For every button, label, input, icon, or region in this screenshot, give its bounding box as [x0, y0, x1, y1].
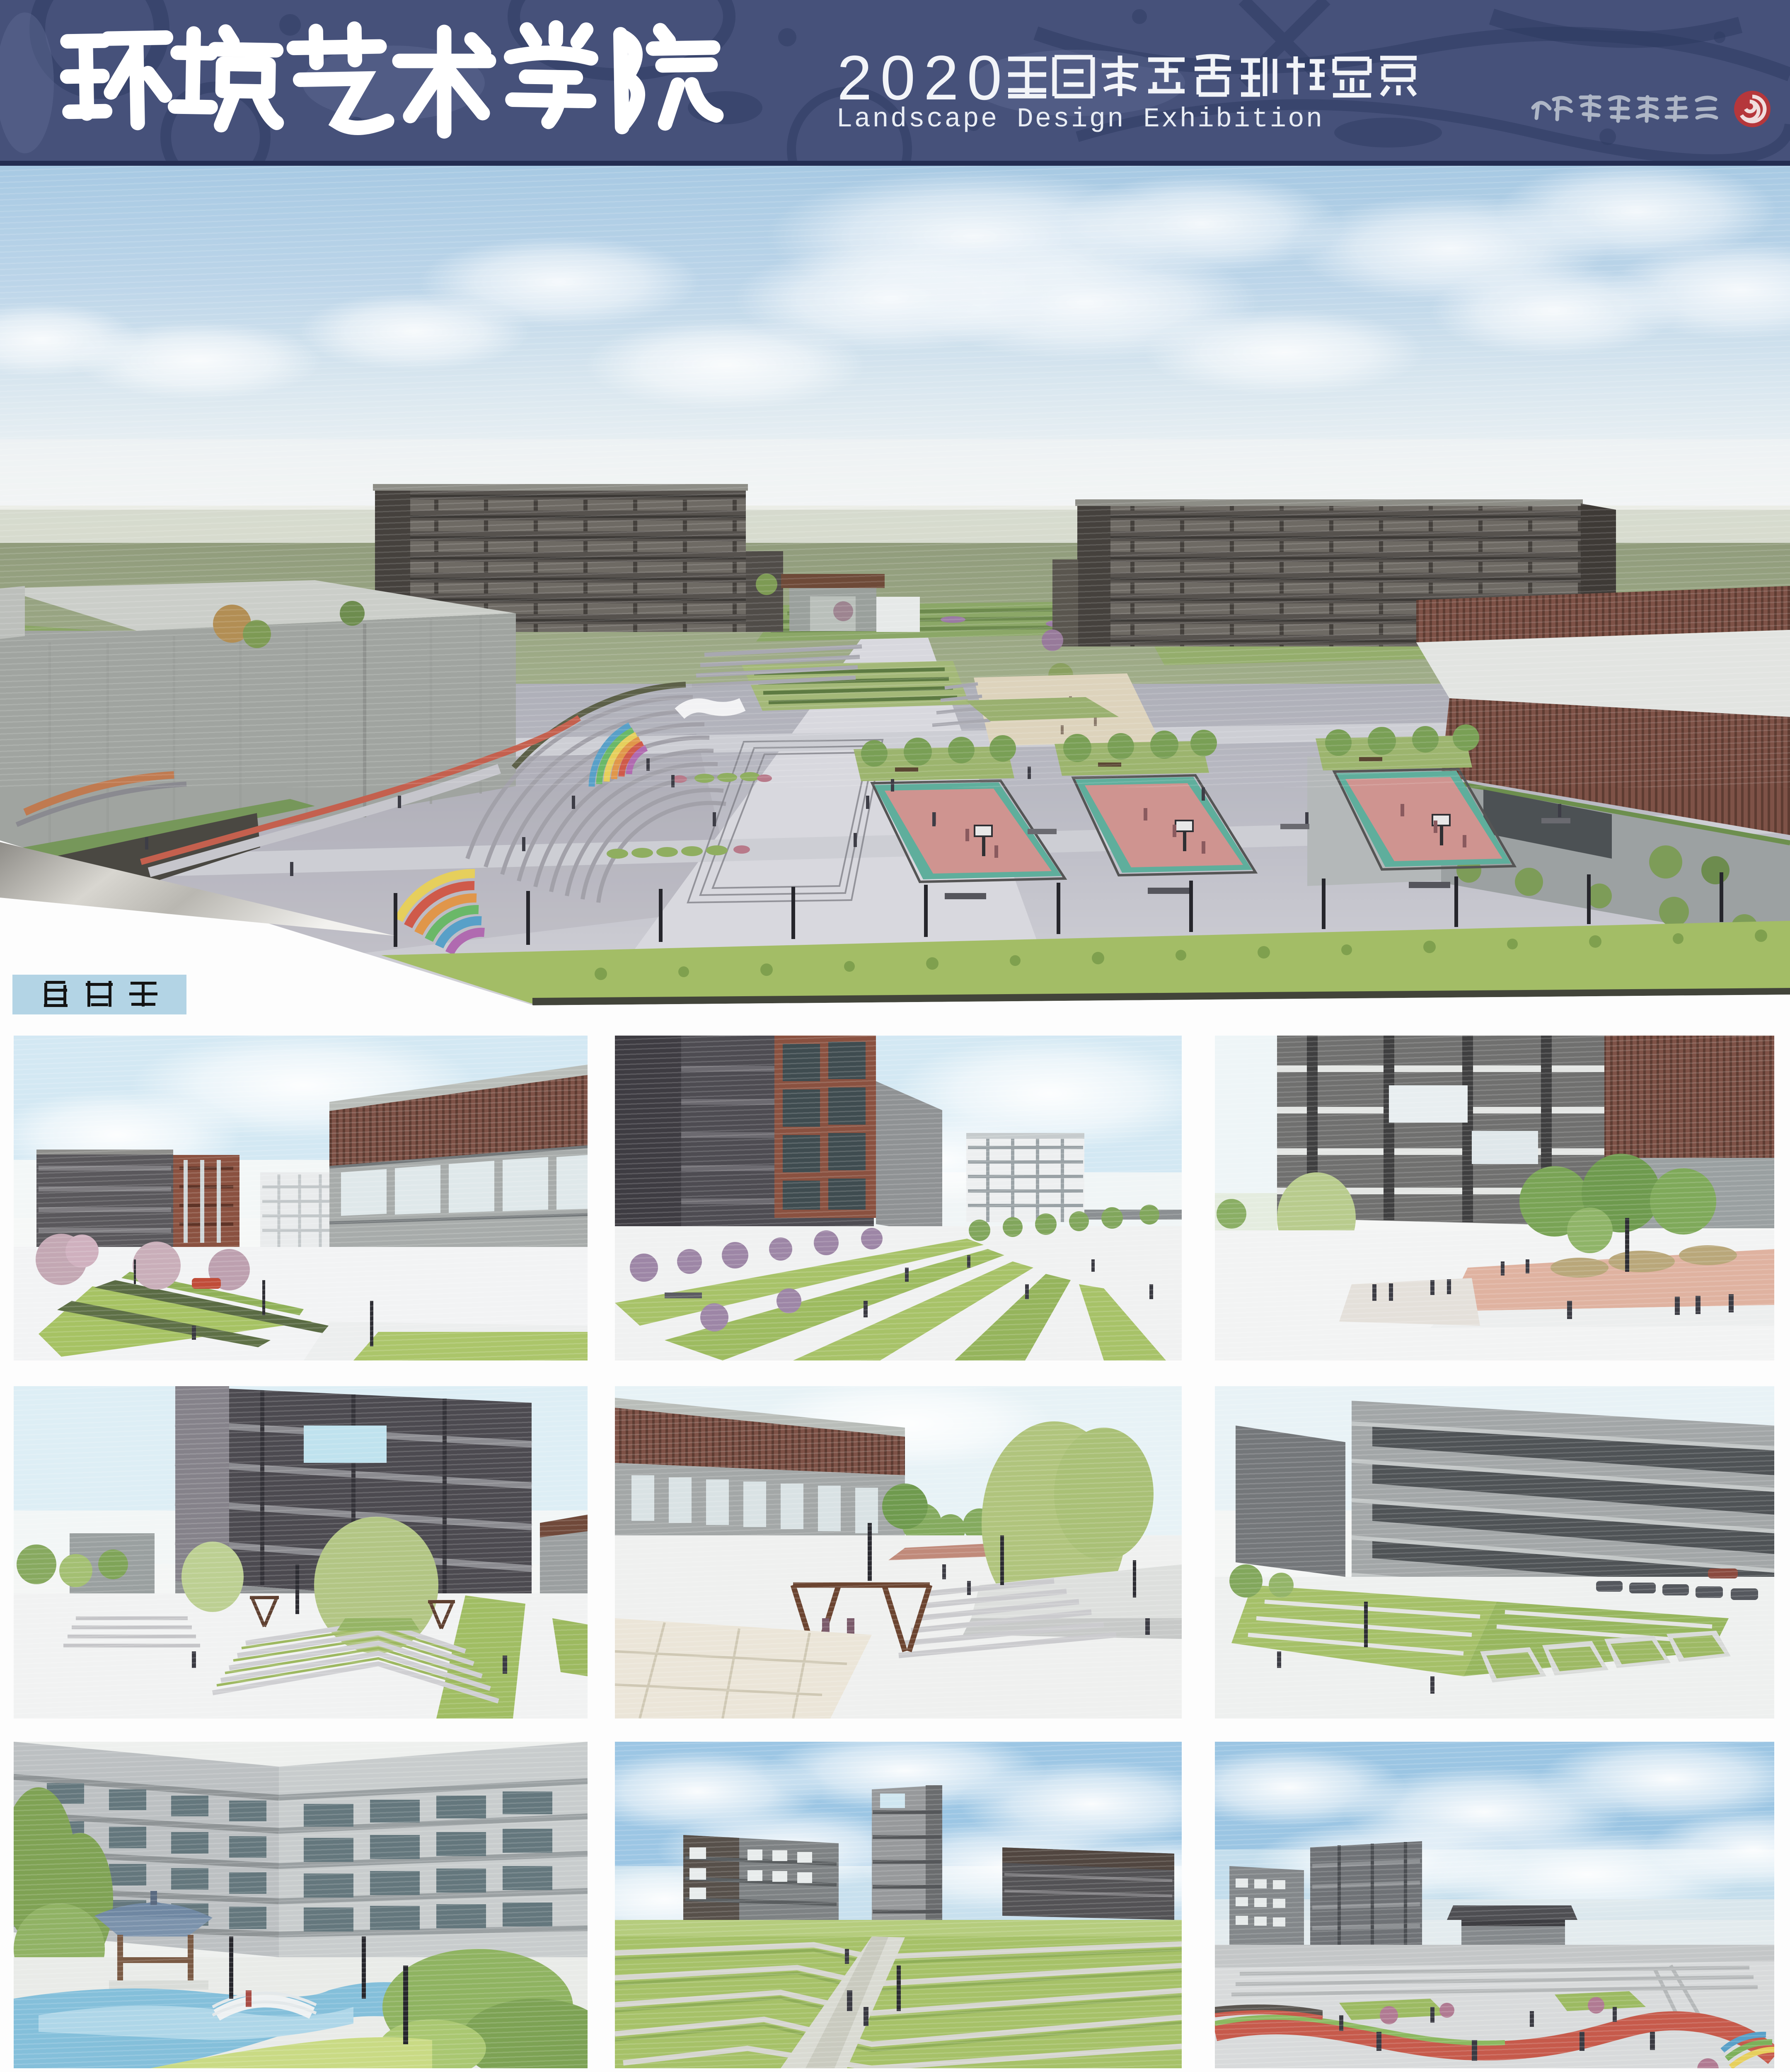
- svg-text:Landscape Design Exhibition: Landscape Design Exhibition: [836, 104, 1324, 135]
- svg-text:2020: 2020: [837, 43, 1010, 113]
